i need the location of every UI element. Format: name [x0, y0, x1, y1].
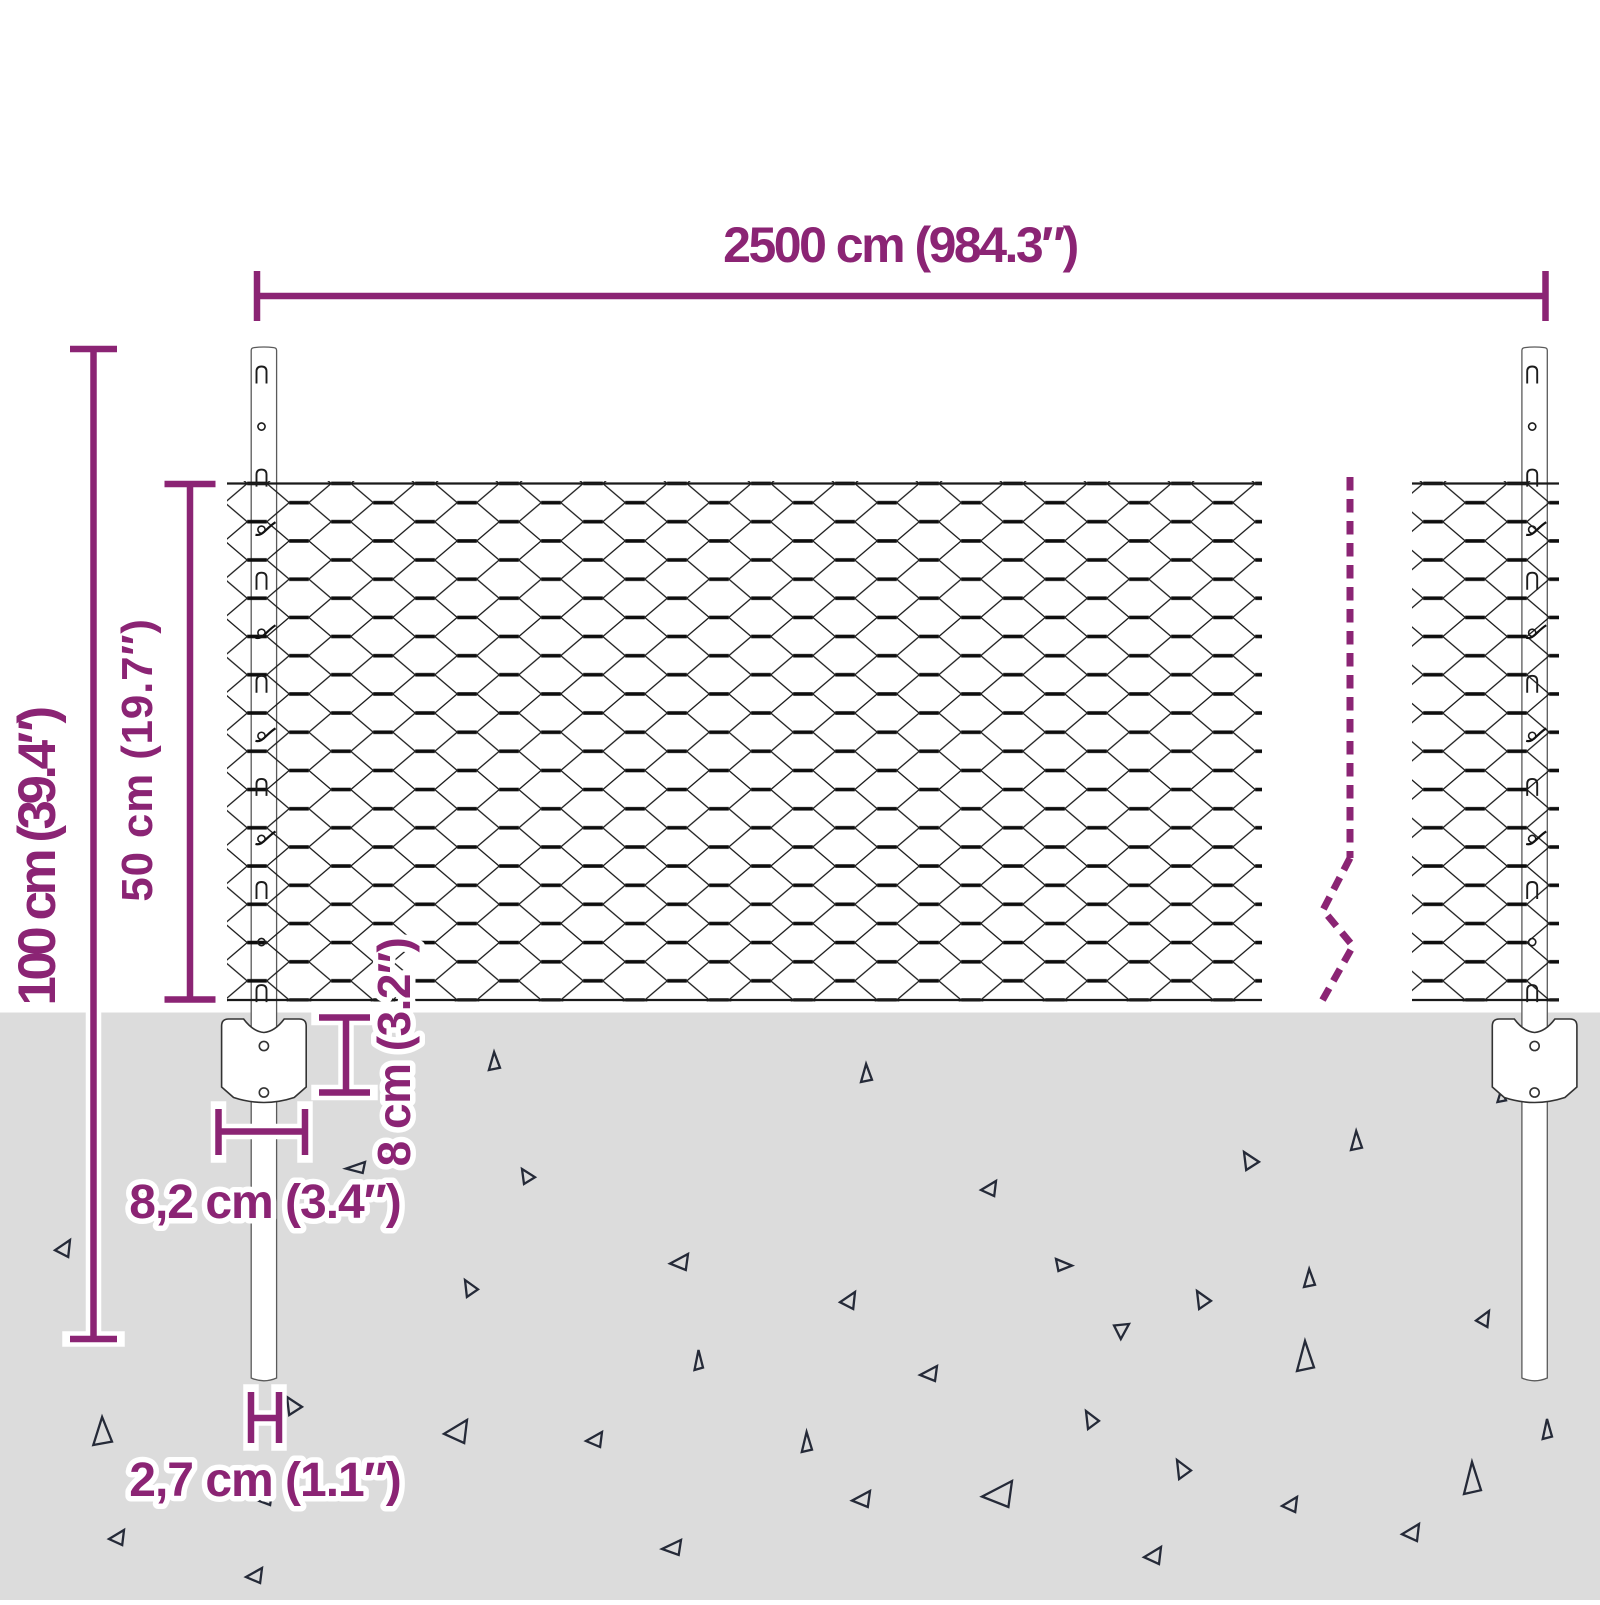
svg-text:8,2 cm (3.4″): 8,2 cm (3.4″): [129, 1176, 400, 1229]
svg-text:50 cm (19.7″): 50 cm (19.7″): [113, 618, 162, 901]
svg-text:2500 cm (984.3″): 2500 cm (984.3″): [723, 217, 1078, 273]
svg-text:8 cm (3.2″): 8 cm (3.2″): [368, 938, 420, 1167]
svg-text:2,7 cm (1.1″): 2,7 cm (1.1″): [129, 1454, 400, 1507]
svg-text:100 cm (39.4″): 100 cm (39.4″): [8, 707, 67, 1005]
